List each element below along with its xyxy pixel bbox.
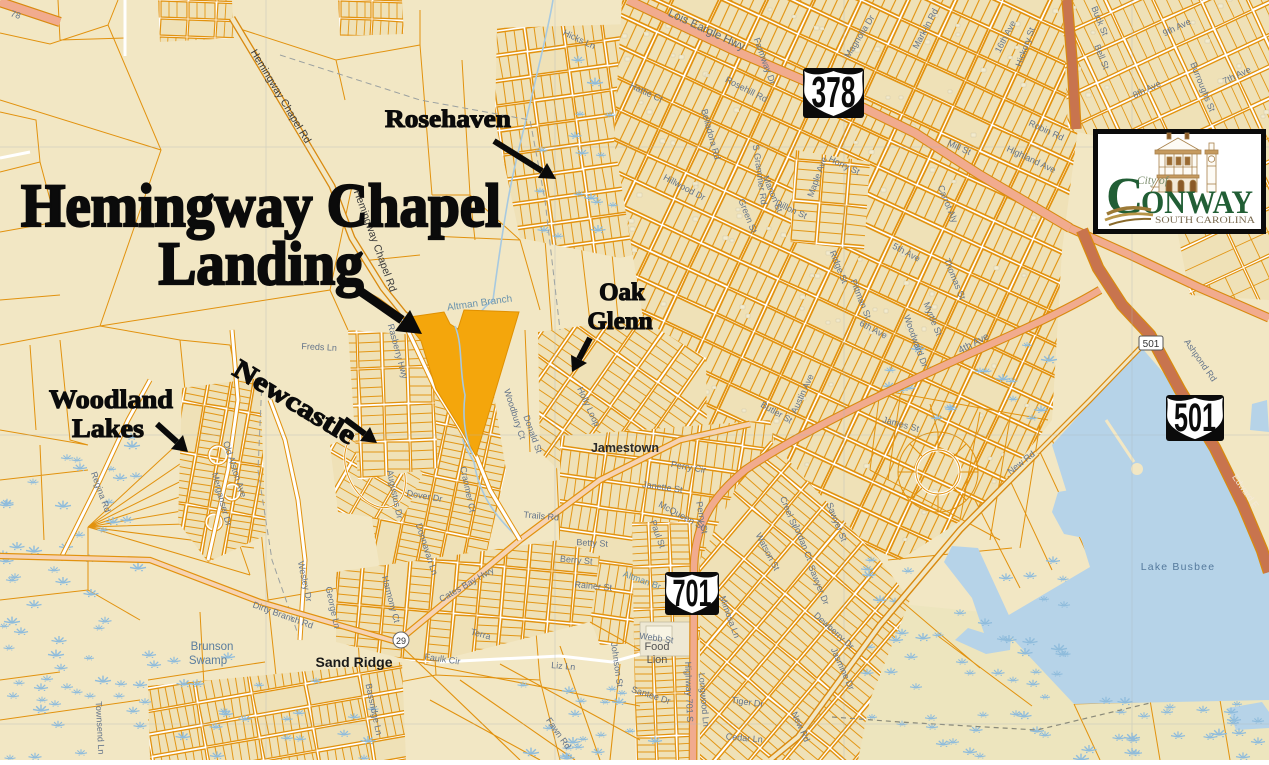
svg-text:Lion: Lion <box>647 654 668 666</box>
svg-text:Swamp: Swamp <box>189 655 227 667</box>
svg-text:378: 378 <box>812 68 856 117</box>
svg-text:Lakes: Lakes <box>72 414 144 443</box>
svg-text:Glenn: Glenn <box>587 308 652 335</box>
svg-text:Brunson: Brunson <box>191 641 234 653</box>
svg-text:Sand Ridge: Sand Ridge <box>315 654 392 670</box>
svg-text:Rosehaven: Rosehaven <box>385 106 511 133</box>
svg-text:Highway 701 S: Highway 701 S <box>683 661 695 722</box>
svg-text:Lake Busbee: Lake Busbee <box>1141 561 1216 573</box>
svg-text:Freds Ln: Freds Ln <box>301 341 337 353</box>
svg-text:Oak: Oak <box>599 279 645 306</box>
svg-text:501: 501 <box>1174 396 1216 440</box>
svg-text:Liz Ln: Liz Ln <box>551 660 576 672</box>
svg-text:Woodland: Woodland <box>49 385 174 414</box>
svg-text:Jamestown: Jamestown <box>591 441 659 455</box>
svg-text:Betty St: Betty St <box>576 537 608 549</box>
svg-text:29: 29 <box>396 636 406 646</box>
svg-text:Landing: Landing <box>159 231 364 298</box>
svg-text:701: 701 <box>673 573 712 615</box>
svg-text:501: 501 <box>1143 339 1160 350</box>
svg-text:Hemingway Chapel: Hemingway Chapel <box>21 173 501 240</box>
svg-text:Food: Food <box>644 641 669 653</box>
svg-text:SOUTH CAROLINA: SOUTH CAROLINA <box>1155 215 1256 225</box>
